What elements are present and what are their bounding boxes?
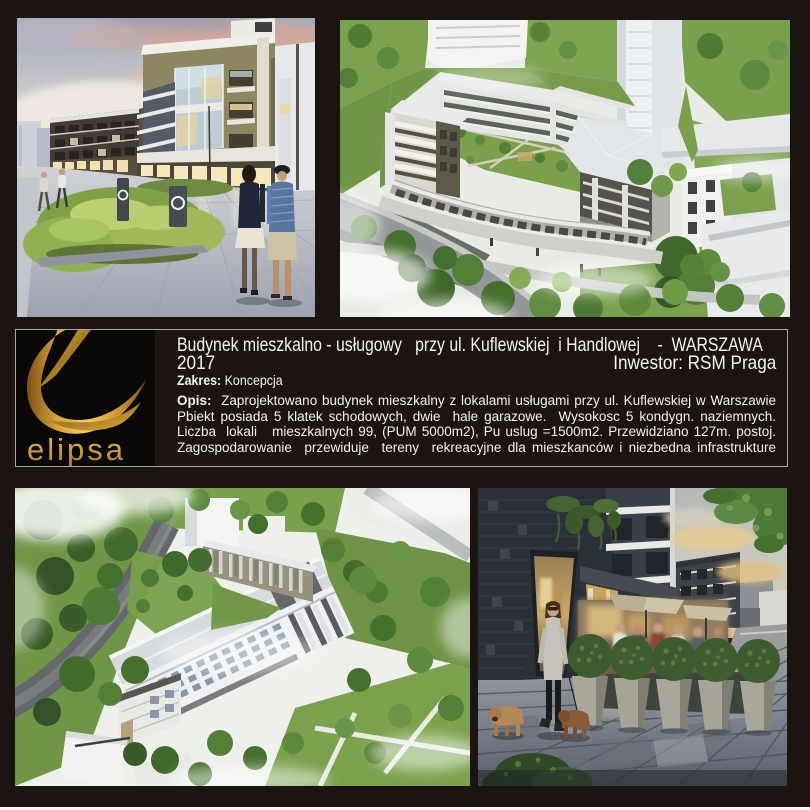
svg-text:elipsa: elipsa (27, 432, 126, 466)
